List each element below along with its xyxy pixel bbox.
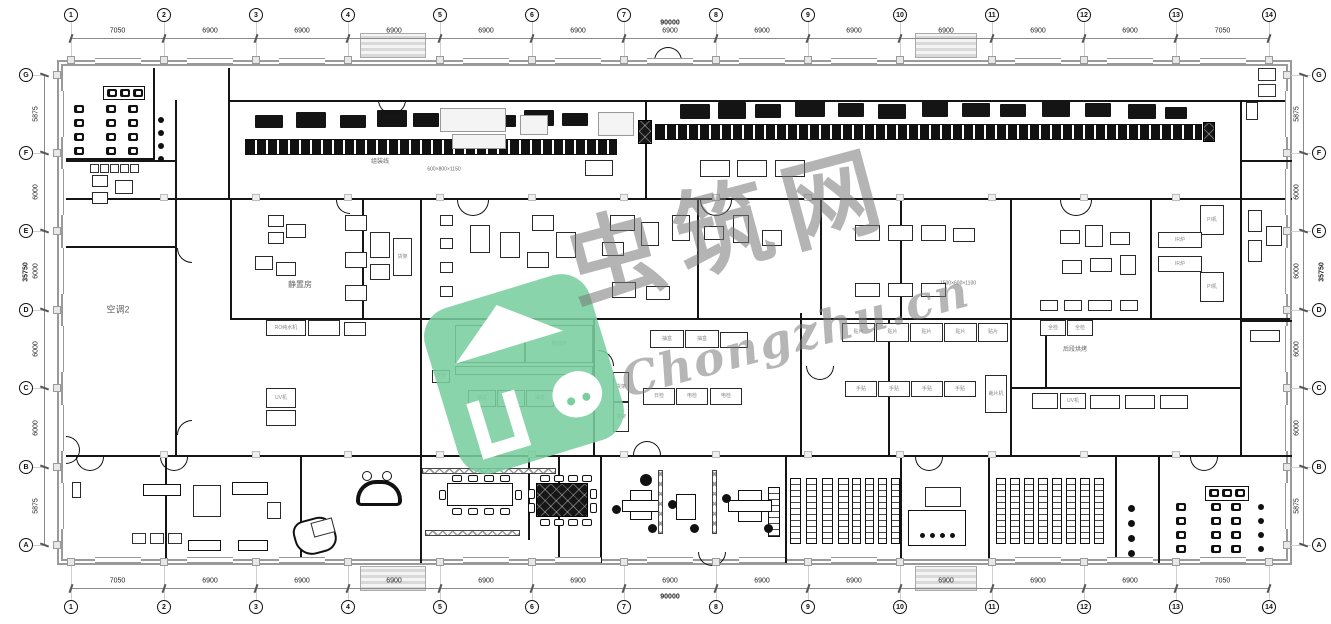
column-marker [528, 56, 536, 64]
equipment-box [527, 252, 549, 268]
window [58, 326, 64, 372]
equipment-box: 抽盒 [468, 390, 496, 407]
floor-plan: 虫筑网 Chongzhu.cn 空调2静置房组装线600×800×1150150… [0, 0, 1331, 624]
wall [988, 457, 990, 563]
equipment-box [1248, 240, 1262, 262]
window [58, 91, 64, 137]
equipment-box: 电检 [710, 388, 742, 405]
equipment-box [440, 286, 453, 297]
machine [562, 113, 588, 126]
dim-label: 6900 [570, 578, 586, 585]
toilet-stall [106, 147, 116, 155]
column-marker [712, 194, 720, 201]
fixture [1258, 518, 1264, 524]
column-marker [1283, 149, 1291, 157]
grid-bubble: B [19, 460, 33, 474]
equipment-box [1120, 300, 1138, 311]
column-marker [252, 56, 260, 64]
dim-label: 6000 [33, 341, 40, 357]
fixture [158, 156, 164, 162]
window [279, 557, 325, 563]
equipment-box [1090, 258, 1112, 272]
column-marker [53, 384, 61, 392]
wall [1010, 198, 1012, 457]
grid-bubble: F [19, 146, 33, 160]
equipment-box [953, 228, 975, 242]
equipment-box [1120, 255, 1136, 275]
dim-tick [1299, 543, 1308, 548]
window [647, 58, 693, 64]
fixture [764, 524, 773, 533]
equipment-box: UV机 [266, 388, 296, 408]
column-marker [896, 194, 904, 201]
grid-bubble: 2 [157, 8, 171, 22]
chair [500, 475, 510, 482]
dim-label: 6900 [1030, 28, 1046, 35]
wall [600, 457, 602, 563]
grid-bubble: D [1312, 303, 1326, 317]
equipment-box [72, 482, 81, 498]
column-marker [67, 56, 75, 64]
equipment-box: IR炉 [1158, 232, 1202, 248]
window [1285, 91, 1291, 137]
grid-bubble: 10 [893, 8, 907, 22]
equipment-box: 贴片 [910, 323, 943, 342]
column-marker [1080, 56, 1088, 64]
equipment-box [440, 238, 453, 249]
equipment-box [92, 175, 108, 187]
table [908, 510, 966, 546]
equipment-box [720, 332, 748, 348]
column-marker [53, 71, 61, 79]
dim-label: 5875 [33, 106, 40, 122]
equipment-box [286, 224, 306, 238]
wall [153, 68, 155, 160]
toilet-stall [106, 133, 116, 141]
machine [296, 112, 326, 128]
wall [645, 100, 647, 198]
column-marker [436, 194, 444, 201]
locker [1258, 84, 1276, 97]
equipment-box: UV机 [1060, 393, 1086, 409]
column-marker [620, 558, 628, 566]
label-equipment-size: 600×800×1150 [427, 168, 460, 173]
wall [1240, 320, 1292, 322]
equipment-box [585, 160, 613, 176]
column-marker [804, 56, 812, 64]
total-dim-bottom: 90000 [660, 594, 679, 601]
equipment-box [646, 286, 670, 300]
dim-label: 6900 [478, 28, 494, 35]
equipment-box [255, 256, 273, 270]
equipment-box [775, 160, 805, 177]
dim-label: 7050 [1215, 578, 1231, 585]
table [676, 494, 696, 520]
locker [168, 533, 182, 544]
column-marker [712, 56, 720, 64]
dim-label: 6900 [386, 578, 402, 585]
locker [1258, 68, 1276, 81]
equipment-gray-box [598, 112, 634, 136]
workbench [996, 478, 1006, 544]
grid-bubble: 10 [893, 600, 907, 614]
window [58, 405, 64, 451]
dimension-line-bottom [71, 588, 1269, 589]
equipment-box [268, 215, 284, 227]
equipment-box: PI机 [1200, 272, 1224, 302]
equipment-box [612, 282, 636, 298]
workbench [1066, 478, 1076, 544]
grid-bubble: 9 [801, 8, 815, 22]
column-marker [1172, 558, 1180, 566]
label-assembly-line: 组装线 [371, 159, 389, 165]
equipment-box [268, 232, 284, 244]
column-marker [1283, 541, 1291, 549]
table [238, 540, 268, 551]
toilet-stall [107, 89, 117, 97]
wall [697, 198, 699, 320]
column-marker [160, 56, 168, 64]
dim-label: 6000 [1294, 341, 1301, 357]
window [279, 58, 325, 64]
window [1285, 169, 1291, 215]
grid-bubble: 1 [64, 600, 78, 614]
equipment-box [1085, 225, 1103, 247]
equipment-box [193, 485, 221, 517]
window [831, 557, 877, 563]
grid-bubble: 9 [801, 600, 815, 614]
toilet-stall [1211, 503, 1221, 511]
dim-label: 6900 [202, 578, 218, 585]
fixture [930, 533, 935, 538]
equipment-box: 日检 [643, 388, 675, 405]
fixture [722, 494, 731, 503]
dim-label: 6000 [1294, 263, 1301, 279]
equipment-box [1248, 210, 1262, 232]
fixture [158, 117, 164, 123]
window [739, 557, 785, 563]
equipment-box [532, 215, 554, 231]
assembly-line-2 [655, 124, 1202, 140]
grid-bubble: 13 [1169, 600, 1183, 614]
wall [175, 100, 177, 457]
grid-bubble: 13 [1169, 8, 1183, 22]
machine [718, 102, 746, 119]
fixture [158, 130, 164, 136]
toilet-stall [120, 89, 130, 97]
column-marker [344, 451, 352, 458]
equipment-box [470, 225, 490, 253]
table [232, 482, 268, 495]
column-marker [1080, 194, 1088, 201]
machine [680, 104, 710, 119]
equipment-box [855, 225, 880, 241]
chair [382, 471, 392, 481]
wall [420, 198, 422, 457]
toilet-stall [74, 147, 84, 155]
fixture [668, 500, 677, 509]
column-marker [67, 558, 75, 566]
equipment-box [1062, 260, 1082, 274]
column-marker [620, 451, 628, 458]
fixture [1128, 550, 1135, 557]
equipment-box [672, 215, 690, 241]
window [187, 557, 233, 563]
dim-label: 6000 [1294, 420, 1301, 436]
dim-label: 6900 [1030, 578, 1046, 585]
column-marker [988, 451, 996, 458]
toilet-stall [1209, 489, 1219, 497]
fixture [1258, 504, 1264, 510]
dim-label: 6900 [754, 28, 770, 35]
workbench [852, 478, 861, 544]
grid-bubble: 6 [525, 600, 539, 614]
grid-bubble: C [19, 381, 33, 395]
dim-label: 6900 [202, 28, 218, 35]
column-marker [53, 306, 61, 314]
equipment-box [921, 225, 946, 241]
dim-label: 6900 [294, 578, 310, 585]
meeting-table [447, 483, 513, 506]
grid-bubble: 4 [341, 8, 355, 22]
fixture [1258, 546, 1264, 552]
chair [540, 475, 550, 482]
column-marker [1283, 384, 1291, 392]
column-marker [344, 558, 352, 566]
machine [340, 115, 366, 128]
window [647, 557, 693, 563]
equipment-box [1032, 393, 1058, 409]
column-marker [528, 194, 536, 201]
fixture [648, 524, 657, 533]
grid-bubble: 4 [341, 600, 355, 614]
equipment-box [1040, 300, 1058, 311]
table [622, 500, 660, 512]
toilet-stall [1211, 531, 1221, 539]
fixture [1128, 520, 1135, 527]
column-marker [528, 451, 536, 458]
workbench [822, 478, 833, 544]
stairs [360, 33, 426, 58]
fixture [920, 533, 925, 538]
window [1107, 58, 1153, 64]
wall [900, 198, 902, 320]
equipment-box: 货架 [613, 402, 629, 432]
window [1285, 483, 1291, 529]
chair [484, 475, 494, 482]
column-marker [988, 194, 996, 201]
equipment-box: 全检 [1040, 320, 1066, 336]
wall [66, 455, 1292, 457]
machine [1085, 103, 1111, 117]
equipment-box [345, 215, 367, 231]
grid-bubble: E [19, 224, 33, 238]
chair [582, 519, 592, 526]
equipment-box [500, 232, 520, 258]
grid-bubble: 3 [249, 8, 263, 22]
machine [1042, 100, 1070, 117]
equipment-box: 手贴 [845, 381, 877, 397]
wall [165, 457, 167, 563]
toilet-stall [106, 119, 116, 127]
toilet-stall [106, 105, 116, 113]
equipment-box [440, 262, 453, 273]
grid-bubble: A [1312, 538, 1326, 552]
equipment-box [737, 160, 767, 177]
window [58, 248, 64, 294]
chair [500, 508, 510, 515]
dim-label: 6900 [938, 28, 954, 35]
equipment-box [344, 322, 366, 336]
grid-bubble: 8 [709, 600, 723, 614]
equipment-box [1250, 330, 1280, 342]
toilet-stall [1176, 545, 1186, 553]
equipment-box [370, 232, 390, 258]
column-marker [896, 451, 904, 458]
wall [1115, 457, 1117, 563]
dim-label: 6900 [938, 578, 954, 585]
workbench [1024, 478, 1034, 544]
dim-label: 6900 [1122, 28, 1138, 35]
total-dim-left: 35750 [23, 262, 30, 281]
chair [452, 508, 462, 515]
window [58, 169, 64, 215]
column-marker [436, 56, 444, 64]
partition [712, 470, 717, 534]
column-marker [344, 194, 352, 201]
equipment-box [92, 192, 108, 204]
equipment-box: 抽盒 [650, 330, 684, 348]
equipment-box: 手贴 [944, 381, 976, 397]
equipment-box [888, 283, 913, 297]
column-marker [528, 558, 536, 566]
conference-table [536, 483, 588, 517]
partition [422, 468, 556, 474]
equipment-box: 贴片 [842, 323, 875, 342]
equipment-box [370, 264, 390, 280]
column-marker [1283, 71, 1291, 79]
wall [1240, 100, 1242, 457]
locker [130, 164, 139, 173]
toilet-stall [1176, 503, 1186, 511]
toilet-stall [1231, 517, 1241, 525]
chair [528, 503, 535, 513]
dim-label: 7050 [110, 578, 126, 585]
wall [593, 318, 595, 457]
column-marker [712, 558, 720, 566]
dim-label: 6900 [662, 578, 678, 585]
equipment-box [888, 225, 913, 241]
equipment-box [115, 180, 133, 194]
equipment-box [556, 232, 576, 258]
grid-bubble: G [1312, 68, 1326, 82]
total-dim-top: 90000 [660, 20, 679, 27]
wall [230, 318, 1290, 320]
toilet-stall [74, 133, 84, 141]
wall [228, 68, 230, 200]
window [555, 557, 601, 563]
equipment-box: 手贴 [878, 381, 910, 397]
chair [554, 519, 564, 526]
wall [1240, 160, 1292, 162]
chair [568, 475, 578, 482]
equipment-box: 货架 [613, 372, 629, 402]
chair [568, 519, 578, 526]
window [739, 58, 785, 64]
dim-tick [40, 543, 49, 548]
column-marker [160, 194, 168, 201]
column-marker [1265, 558, 1273, 566]
column-marker [804, 194, 812, 201]
machine [878, 104, 906, 119]
equipment-box [345, 252, 367, 268]
grid-bubble: 11 [985, 8, 999, 22]
chair [362, 471, 372, 481]
window [1285, 248, 1291, 294]
chair [590, 503, 597, 513]
fixture [690, 524, 699, 533]
grid-bubble: A [19, 538, 33, 552]
column-marker [1283, 227, 1291, 235]
workbench [1094, 478, 1104, 544]
column-marker [1283, 306, 1291, 314]
column-marker [988, 56, 996, 64]
workbench [1052, 478, 1062, 544]
equipment-box: 贴片 [978, 323, 1008, 342]
grid-bubble: G [19, 68, 33, 82]
wall [66, 246, 177, 248]
dim-label: 5875 [33, 498, 40, 514]
fixture [940, 533, 945, 538]
fixture [612, 505, 621, 514]
window [95, 557, 141, 563]
chair [528, 489, 535, 499]
equipment-box [1090, 395, 1120, 409]
equipment-box [762, 230, 782, 246]
table [728, 500, 772, 512]
grid-bubble: 6 [525, 8, 539, 22]
chair [540, 519, 550, 526]
equipment-box: 电检 [676, 388, 708, 405]
fixture [640, 474, 652, 486]
workbench [838, 478, 849, 544]
toilet-stall [74, 119, 84, 127]
column-marker [620, 56, 628, 64]
dim-label: 6900 [1122, 578, 1138, 585]
table [188, 540, 221, 551]
toilet-stall [1235, 489, 1245, 497]
wall [1158, 457, 1160, 563]
toilet-stall [128, 147, 138, 155]
machine [962, 103, 990, 117]
equipment-box: 贴片 [876, 323, 909, 342]
equipment-box [1266, 226, 1282, 246]
equipment-box [610, 215, 635, 231]
toilet-stall [128, 133, 138, 141]
fixture [950, 533, 955, 538]
machine [255, 115, 283, 128]
column-marker [252, 451, 260, 458]
equipment-box [1064, 300, 1082, 311]
column-marker [804, 558, 812, 566]
wall [66, 198, 1292, 200]
locker [150, 533, 164, 544]
column-marker [252, 194, 260, 201]
equipment-box [1060, 230, 1080, 244]
equipment-box: 手贴 [911, 381, 943, 397]
grid-bubble: 3 [249, 600, 263, 614]
chair [484, 508, 494, 515]
